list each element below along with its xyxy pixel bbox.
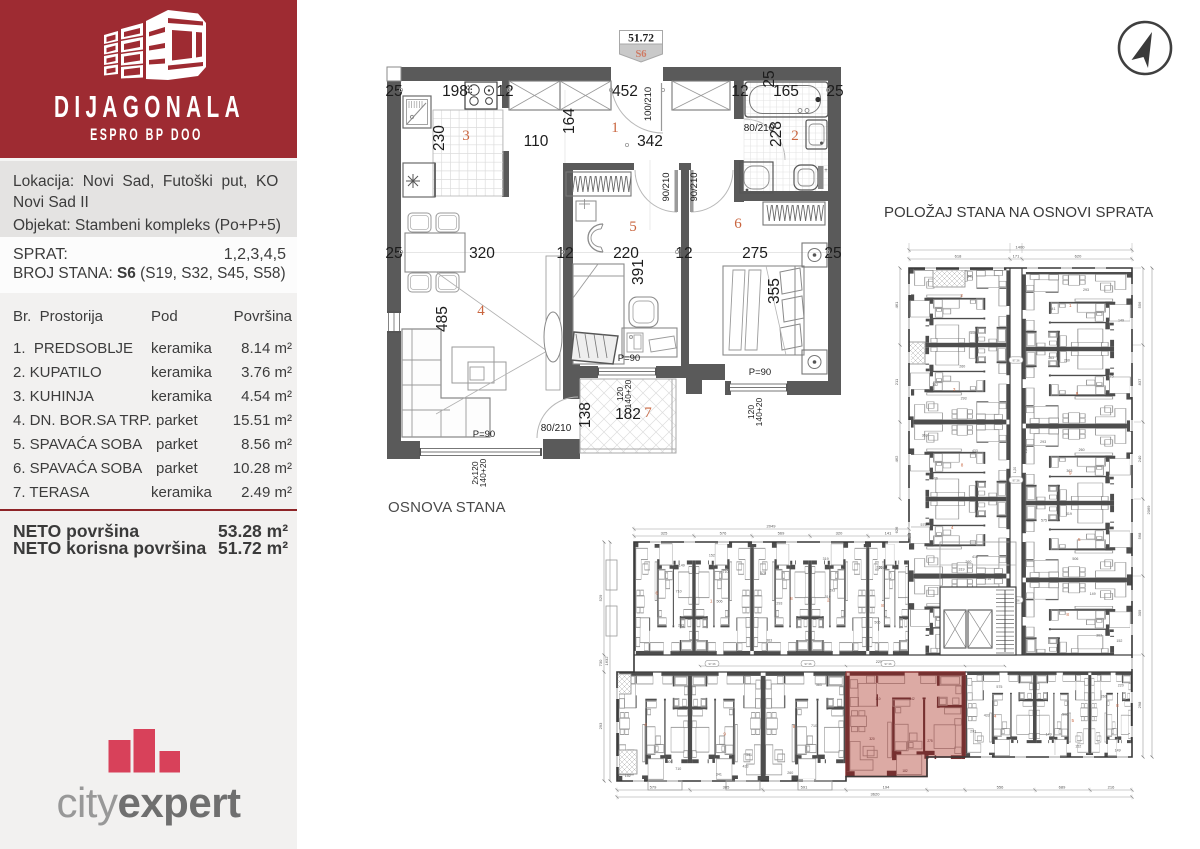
svg-text:575: 575 bbox=[1108, 374, 1114, 378]
svg-text:309: 309 bbox=[1137, 609, 1142, 616]
svg-text:149: 149 bbox=[679, 564, 685, 568]
svg-text:90/210: 90/210 bbox=[689, 172, 700, 201]
svg-text:3620: 3620 bbox=[871, 792, 881, 797]
svg-text:1: 1 bbox=[1069, 303, 1072, 308]
svg-text:837: 837 bbox=[1137, 378, 1142, 385]
svg-text:341: 341 bbox=[716, 773, 722, 777]
svg-text:4: 4 bbox=[994, 713, 997, 718]
svg-text:5: 5 bbox=[1072, 718, 1075, 723]
svg-text:506: 506 bbox=[970, 331, 976, 335]
svg-text:710: 710 bbox=[723, 570, 729, 574]
svg-text:80/210: 80/210 bbox=[541, 423, 572, 434]
svg-text:149: 149 bbox=[1090, 592, 1096, 596]
svg-text:194: 194 bbox=[883, 785, 890, 790]
svg-text:293: 293 bbox=[1040, 440, 1046, 444]
svg-text:710: 710 bbox=[676, 590, 682, 594]
svg-text:341: 341 bbox=[967, 275, 973, 279]
svg-text:140+20: 140+20 bbox=[754, 397, 764, 426]
svg-text:4: 4 bbox=[951, 525, 954, 530]
svg-text:1,20: 1,20 bbox=[1024, 447, 1028, 454]
svg-text:9: 9 bbox=[1069, 470, 1072, 475]
svg-text:140+20: 140+20 bbox=[623, 379, 633, 408]
svg-text:149: 149 bbox=[1118, 319, 1124, 323]
svg-text:391: 391 bbox=[630, 259, 647, 285]
svg-text:710: 710 bbox=[675, 767, 681, 771]
svg-text:433: 433 bbox=[972, 449, 978, 453]
svg-text:152: 152 bbox=[709, 553, 715, 557]
svg-text:569: 569 bbox=[778, 531, 785, 536]
svg-text:506: 506 bbox=[666, 760, 672, 764]
svg-text:12: 12 bbox=[556, 245, 573, 262]
svg-text:452: 452 bbox=[612, 83, 638, 100]
svg-text:97.36: 97.36 bbox=[805, 662, 812, 666]
svg-text:363: 363 bbox=[1048, 356, 1054, 360]
svg-text:319: 319 bbox=[1066, 512, 1072, 516]
svg-text:+: + bbox=[824, 168, 828, 174]
svg-text:485: 485 bbox=[434, 306, 451, 332]
svg-text:1632: 1632 bbox=[604, 656, 609, 666]
svg-text:51.72: 51.72 bbox=[628, 33, 654, 45]
svg-text:568: 568 bbox=[1137, 532, 1142, 539]
svg-text:689: 689 bbox=[1059, 785, 1066, 790]
svg-text:293: 293 bbox=[829, 589, 835, 593]
svg-text:8: 8 bbox=[790, 596, 793, 601]
svg-text:9: 9 bbox=[723, 732, 726, 737]
svg-text:9: 9 bbox=[793, 724, 796, 729]
svg-text:141: 141 bbox=[885, 531, 892, 536]
svg-text:462: 462 bbox=[894, 455, 899, 462]
svg-text:110: 110 bbox=[875, 697, 880, 701]
svg-text:260: 260 bbox=[965, 560, 971, 564]
svg-text:575: 575 bbox=[921, 523, 927, 527]
svg-text:260: 260 bbox=[1101, 695, 1107, 699]
svg-text:626: 626 bbox=[894, 526, 899, 533]
svg-text:97.36: 97.36 bbox=[885, 662, 892, 666]
svg-text:260: 260 bbox=[1064, 358, 1070, 362]
svg-text:2: 2 bbox=[960, 293, 963, 298]
svg-text:8: 8 bbox=[1076, 391, 1079, 396]
svg-text:341: 341 bbox=[1050, 307, 1056, 311]
svg-text:579: 579 bbox=[650, 785, 657, 790]
svg-text:529: 529 bbox=[598, 594, 603, 601]
svg-text:152: 152 bbox=[1075, 744, 1081, 748]
svg-text:P=90: P=90 bbox=[618, 353, 640, 364]
svg-text:182: 182 bbox=[902, 769, 908, 773]
svg-text:5: 5 bbox=[1078, 537, 1081, 542]
svg-text:293: 293 bbox=[970, 730, 976, 734]
svg-text:1: 1 bbox=[710, 599, 713, 604]
svg-text:8: 8 bbox=[1066, 612, 1069, 617]
svg-text:80/210: 80/210 bbox=[744, 123, 775, 134]
svg-text:220: 220 bbox=[1118, 683, 1124, 687]
svg-text:363: 363 bbox=[766, 638, 772, 642]
svg-text:2: 2 bbox=[791, 128, 799, 144]
svg-text:260: 260 bbox=[959, 364, 965, 368]
svg-text:1,20: 1,20 bbox=[1013, 467, 1017, 473]
svg-text:P=90: P=90 bbox=[473, 429, 495, 440]
svg-text:710: 710 bbox=[811, 724, 817, 728]
svg-text:341: 341 bbox=[746, 753, 752, 757]
svg-text:2.16: 2.16 bbox=[985, 577, 992, 581]
svg-text:152: 152 bbox=[1116, 639, 1122, 643]
svg-text:211: 211 bbox=[894, 378, 899, 385]
svg-text:216: 216 bbox=[1108, 785, 1115, 790]
svg-text:506: 506 bbox=[932, 477, 938, 481]
svg-text:385: 385 bbox=[723, 785, 730, 790]
svg-text:7: 7 bbox=[644, 405, 652, 421]
svg-text:433: 433 bbox=[743, 765, 749, 769]
svg-text:320: 320 bbox=[836, 531, 843, 536]
svg-text:97.36: 97.36 bbox=[1013, 479, 1020, 483]
svg-text:461: 461 bbox=[894, 301, 899, 308]
svg-text:618: 618 bbox=[955, 254, 962, 259]
svg-text:5: 5 bbox=[629, 219, 637, 235]
svg-text:410: 410 bbox=[972, 555, 978, 559]
svg-text:293: 293 bbox=[678, 623, 684, 627]
svg-text:506: 506 bbox=[1072, 557, 1078, 561]
svg-text:230: 230 bbox=[431, 125, 448, 151]
svg-text:12: 12 bbox=[496, 83, 513, 100]
svg-text:8: 8 bbox=[961, 463, 964, 468]
svg-text:620: 620 bbox=[1075, 254, 1082, 259]
svg-text:575: 575 bbox=[1041, 518, 1047, 522]
svg-text:506: 506 bbox=[1062, 713, 1068, 717]
svg-text:293: 293 bbox=[598, 722, 603, 729]
svg-text:140+20: 140+20 bbox=[478, 458, 488, 487]
svg-text:164: 164 bbox=[561, 108, 578, 134]
svg-text:90/210: 90/210 bbox=[661, 172, 672, 201]
svg-text:730: 730 bbox=[598, 659, 603, 666]
svg-text:2069: 2069 bbox=[1146, 505, 1151, 515]
svg-text:97.36: 97.36 bbox=[1013, 359, 1020, 363]
svg-text:8: 8 bbox=[881, 603, 884, 608]
svg-text:556: 556 bbox=[997, 785, 1004, 790]
svg-text:220: 220 bbox=[876, 566, 882, 570]
svg-text:4: 4 bbox=[477, 303, 485, 319]
svg-text:110: 110 bbox=[524, 133, 549, 150]
svg-text:325: 325 bbox=[661, 531, 668, 536]
svg-text:342: 342 bbox=[909, 697, 915, 701]
svg-text:149: 149 bbox=[1046, 733, 1052, 737]
svg-text:575: 575 bbox=[996, 685, 1002, 689]
svg-text:319: 319 bbox=[823, 557, 829, 561]
svg-text:576: 576 bbox=[720, 531, 727, 536]
svg-text:6: 6 bbox=[734, 216, 742, 232]
svg-text:100/210: 100/210 bbox=[643, 87, 654, 121]
svg-text:240: 240 bbox=[1137, 455, 1142, 462]
svg-text:171: 171 bbox=[1013, 254, 1020, 259]
svg-text:320: 320 bbox=[469, 245, 495, 262]
svg-text:3: 3 bbox=[462, 128, 470, 144]
svg-text:3: 3 bbox=[953, 387, 956, 392]
svg-text:97.36: 97.36 bbox=[709, 662, 716, 666]
svg-text:591: 591 bbox=[801, 785, 808, 790]
svg-text:575: 575 bbox=[760, 571, 766, 575]
svg-text:1400: 1400 bbox=[1016, 245, 1026, 250]
svg-text:12: 12 bbox=[731, 83, 748, 100]
svg-text:363: 363 bbox=[1096, 633, 1102, 637]
svg-text:556: 556 bbox=[1137, 301, 1142, 308]
svg-text:2049: 2049 bbox=[767, 524, 777, 529]
svg-text:433: 433 bbox=[984, 714, 990, 718]
svg-text:260: 260 bbox=[787, 771, 793, 775]
svg-text:25: 25 bbox=[761, 70, 778, 87]
svg-text:6: 6 bbox=[656, 591, 659, 596]
svg-text:320: 320 bbox=[869, 737, 875, 741]
svg-text:275: 275 bbox=[927, 739, 933, 743]
svg-text:506: 506 bbox=[874, 621, 880, 625]
svg-text:342: 342 bbox=[637, 133, 663, 150]
svg-text:275: 275 bbox=[742, 245, 768, 262]
svg-text:293: 293 bbox=[776, 601, 782, 605]
svg-text:138: 138 bbox=[577, 402, 594, 428]
svg-text:8: 8 bbox=[1116, 703, 1119, 708]
svg-text:298: 298 bbox=[1137, 701, 1142, 708]
svg-text:152: 152 bbox=[932, 383, 938, 387]
svg-text:260: 260 bbox=[1079, 448, 1085, 452]
svg-text:293: 293 bbox=[961, 397, 967, 401]
svg-text:1: 1 bbox=[611, 120, 619, 136]
svg-text:293: 293 bbox=[1083, 288, 1089, 292]
svg-text:2: 2 bbox=[827, 598, 830, 603]
svg-text:P=90: P=90 bbox=[749, 367, 771, 378]
svg-text:506: 506 bbox=[717, 599, 723, 603]
svg-text:363: 363 bbox=[816, 683, 822, 687]
svg-text:152: 152 bbox=[625, 774, 631, 778]
svg-text:198: 198 bbox=[442, 83, 468, 100]
svg-text:4: 4 bbox=[644, 722, 647, 727]
svg-text:149: 149 bbox=[1115, 748, 1121, 752]
svg-text:S6: S6 bbox=[635, 49, 646, 60]
svg-text:319: 319 bbox=[959, 567, 965, 571]
svg-text:363: 363 bbox=[922, 433, 928, 437]
svg-text:355: 355 bbox=[766, 278, 783, 304]
